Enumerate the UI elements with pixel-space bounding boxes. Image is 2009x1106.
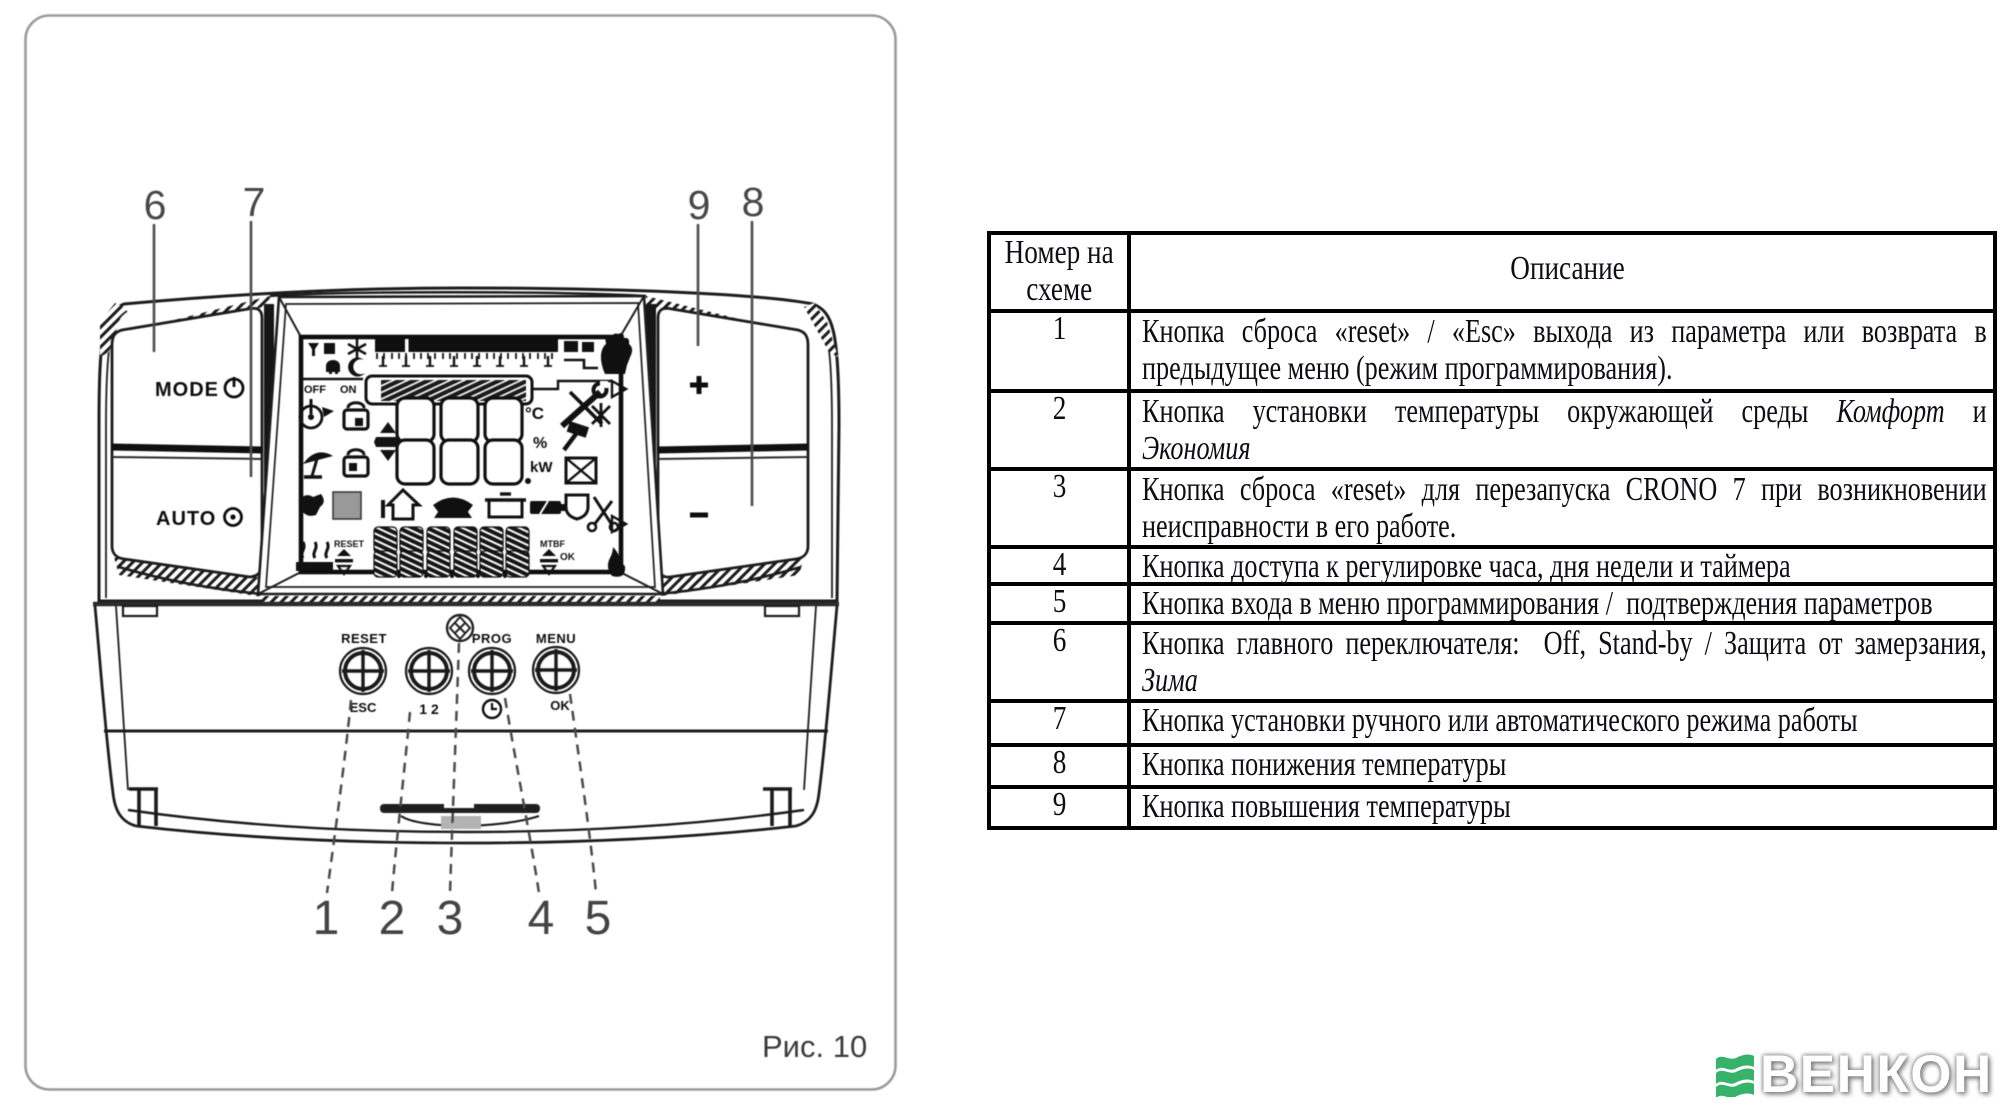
svg-text:3: 3 <box>437 892 464 945</box>
svg-text:1: 1 <box>313 892 340 945</box>
svg-text:RESET: RESET <box>341 631 387 646</box>
svg-text:8: 8 <box>742 179 765 225</box>
svg-text:RESET: RESET <box>334 539 365 549</box>
svg-text:PROG: PROG <box>472 631 512 646</box>
svg-text:5: 5 <box>585 892 612 945</box>
svg-text:OK: OK <box>560 552 576 563</box>
svg-text:7: 7 <box>243 179 266 225</box>
svg-text:1 2: 1 2 <box>419 701 439 717</box>
svg-text:4: 4 <box>528 892 555 945</box>
svg-text:OK: OK <box>550 698 570 713</box>
svg-text:2: 2 <box>379 892 406 945</box>
svg-text:MENU: MENU <box>536 631 576 646</box>
svg-text:6: 6 <box>144 182 167 228</box>
svg-text:MTBF: MTBF <box>540 539 565 549</box>
svg-text:ESC: ESC <box>350 700 377 715</box>
svg-text:%: % <box>533 435 547 452</box>
svg-text:MODE: MODE <box>155 379 219 401</box>
svg-text:Рис. 10: Рис. 10 <box>762 1029 867 1064</box>
svg-text:9: 9 <box>688 182 711 228</box>
svg-text:AUTO: AUTO <box>156 508 216 530</box>
svg-text:ON: ON <box>340 384 357 396</box>
svg-text:°C: °C <box>525 404 544 423</box>
svg-text:OFF: OFF <box>304 384 326 396</box>
svg-text:kW: kW <box>530 459 553 476</box>
